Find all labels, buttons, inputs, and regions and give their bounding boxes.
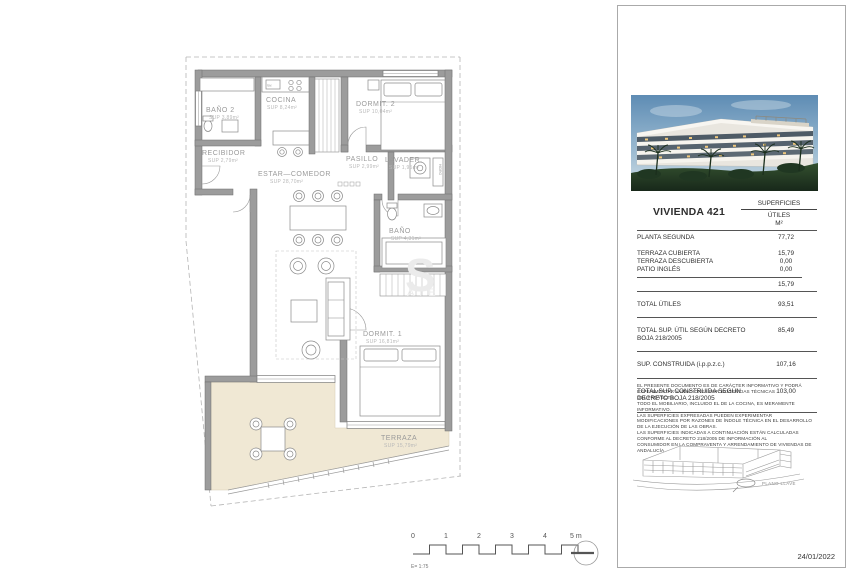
hidro-annotation: HIDRO xyxy=(438,164,442,176)
room-label: ESTAR—COMEDOR xyxy=(258,171,331,178)
scale-tick: 1 xyxy=(444,533,448,540)
scale-tick: 5 m xyxy=(570,533,582,540)
key-plan: PLANO LLAVE xyxy=(628,428,833,513)
column-header-utiles: ÚTILES xyxy=(741,210,817,219)
unit-title: VIVIENDA 421 xyxy=(637,198,741,218)
disclaimer-line: TODO EL MOBILIARIO, INCLUIDO EL DE LA CO… xyxy=(637,401,813,413)
room-label: BAÑO xyxy=(389,226,411,235)
room-sup: SUP 2,79m² xyxy=(208,158,238,164)
table-rule xyxy=(637,378,817,379)
disclaimer-line: EL PRESENTE DOCUMENTO ES DE CARÁCTER INF… xyxy=(637,383,813,395)
dining-set xyxy=(290,191,346,246)
disclaimer-line: LAS SUPERFICIES EXPRESADAS PUEDEN EXPERI… xyxy=(637,413,813,425)
room-sup: SUP 1,95m² xyxy=(389,165,419,171)
table-row: TERRAZA CUBIERTA 15,79 xyxy=(637,250,817,258)
scale-tick: 3 xyxy=(510,533,514,540)
column-header-m2: M² xyxy=(741,219,817,227)
floor-plan: lav. xyxy=(178,46,478,531)
room-label: LAVADER. xyxy=(385,157,423,164)
document-page: lav. xyxy=(0,0,850,572)
key-plan-unit-marker xyxy=(733,479,755,492)
room-sup: SUP 16,81m² xyxy=(366,339,399,345)
room-label: BAÑO 2 xyxy=(206,105,235,114)
room-sup: SUP 15,79m² xyxy=(384,443,417,449)
building-photo xyxy=(631,95,818,191)
table-row: PLANTA SEGUNDA 77,72 xyxy=(637,234,817,242)
table-row: SUP. CONSTRUIDA (i.p.p.z.c.) 107,16 xyxy=(637,361,817,369)
scale-tick: 0 xyxy=(411,533,415,540)
bed-dormit-1 xyxy=(360,346,440,416)
bar-stools xyxy=(278,148,303,157)
bed-dormit-2 xyxy=(368,80,445,150)
room-sup: SUP 4,31m² xyxy=(391,236,421,242)
scale-tick: 4 xyxy=(543,533,547,540)
table-rule xyxy=(637,230,817,231)
column-header-superficies: SUPERFICIES xyxy=(741,198,817,210)
room-sup: SUP 2,99m² xyxy=(349,164,379,170)
table-row: TOTAL ÚTILES 93,51 xyxy=(637,301,817,309)
room-label: COCINA xyxy=(266,97,296,104)
table-rule xyxy=(637,291,817,292)
scale-bar-line xyxy=(413,545,578,554)
key-plan-label: PLANO LLAVE xyxy=(762,481,796,486)
scale-bar: 0 1 2 3 4 5 m E= 1:75 xyxy=(403,524,623,572)
table-rule xyxy=(637,277,802,278)
table-row-subtotal: 15,79 xyxy=(637,281,817,288)
table-rule xyxy=(637,351,817,352)
room-label: DORMIT. 1 xyxy=(363,331,402,338)
table-rule xyxy=(637,317,817,318)
table-row: PATIO INGLÉS 0,00 xyxy=(637,266,817,274)
document-date: 24/01/2022 xyxy=(797,552,835,561)
room-sup: SUP 28,70m² xyxy=(270,179,303,185)
info-panel: VIVIENDA 421 SUPERFICIES ÚTILES M² PLANT… xyxy=(617,5,846,568)
sink-annotation: lav. xyxy=(267,84,272,88)
table-row: TERRAZA DESCUBIERTA 0,00 xyxy=(637,258,817,266)
room-sup: SUP 10,04m² xyxy=(359,109,392,115)
column-header: SUPERFICIES ÚTILES M² xyxy=(741,198,817,227)
room-label: PASILLO xyxy=(346,156,378,163)
scale-tick: 2 xyxy=(477,533,481,540)
room-label: DORMIT. 2 xyxy=(356,101,395,108)
electrical-boxes xyxy=(338,182,360,186)
scale-note: E= 1:75 xyxy=(411,564,429,570)
room-sup: SUP 8,24m² xyxy=(267,105,297,111)
room-label: TERRAZA xyxy=(381,435,417,442)
room-label: RECIBIDOR xyxy=(202,150,245,157)
room-sup: SUP 3,89m² xyxy=(209,115,239,121)
table-row: TOTAL SUP. ÚTIL SEGÚN DECRETO BOJA 218/2… xyxy=(637,327,817,342)
